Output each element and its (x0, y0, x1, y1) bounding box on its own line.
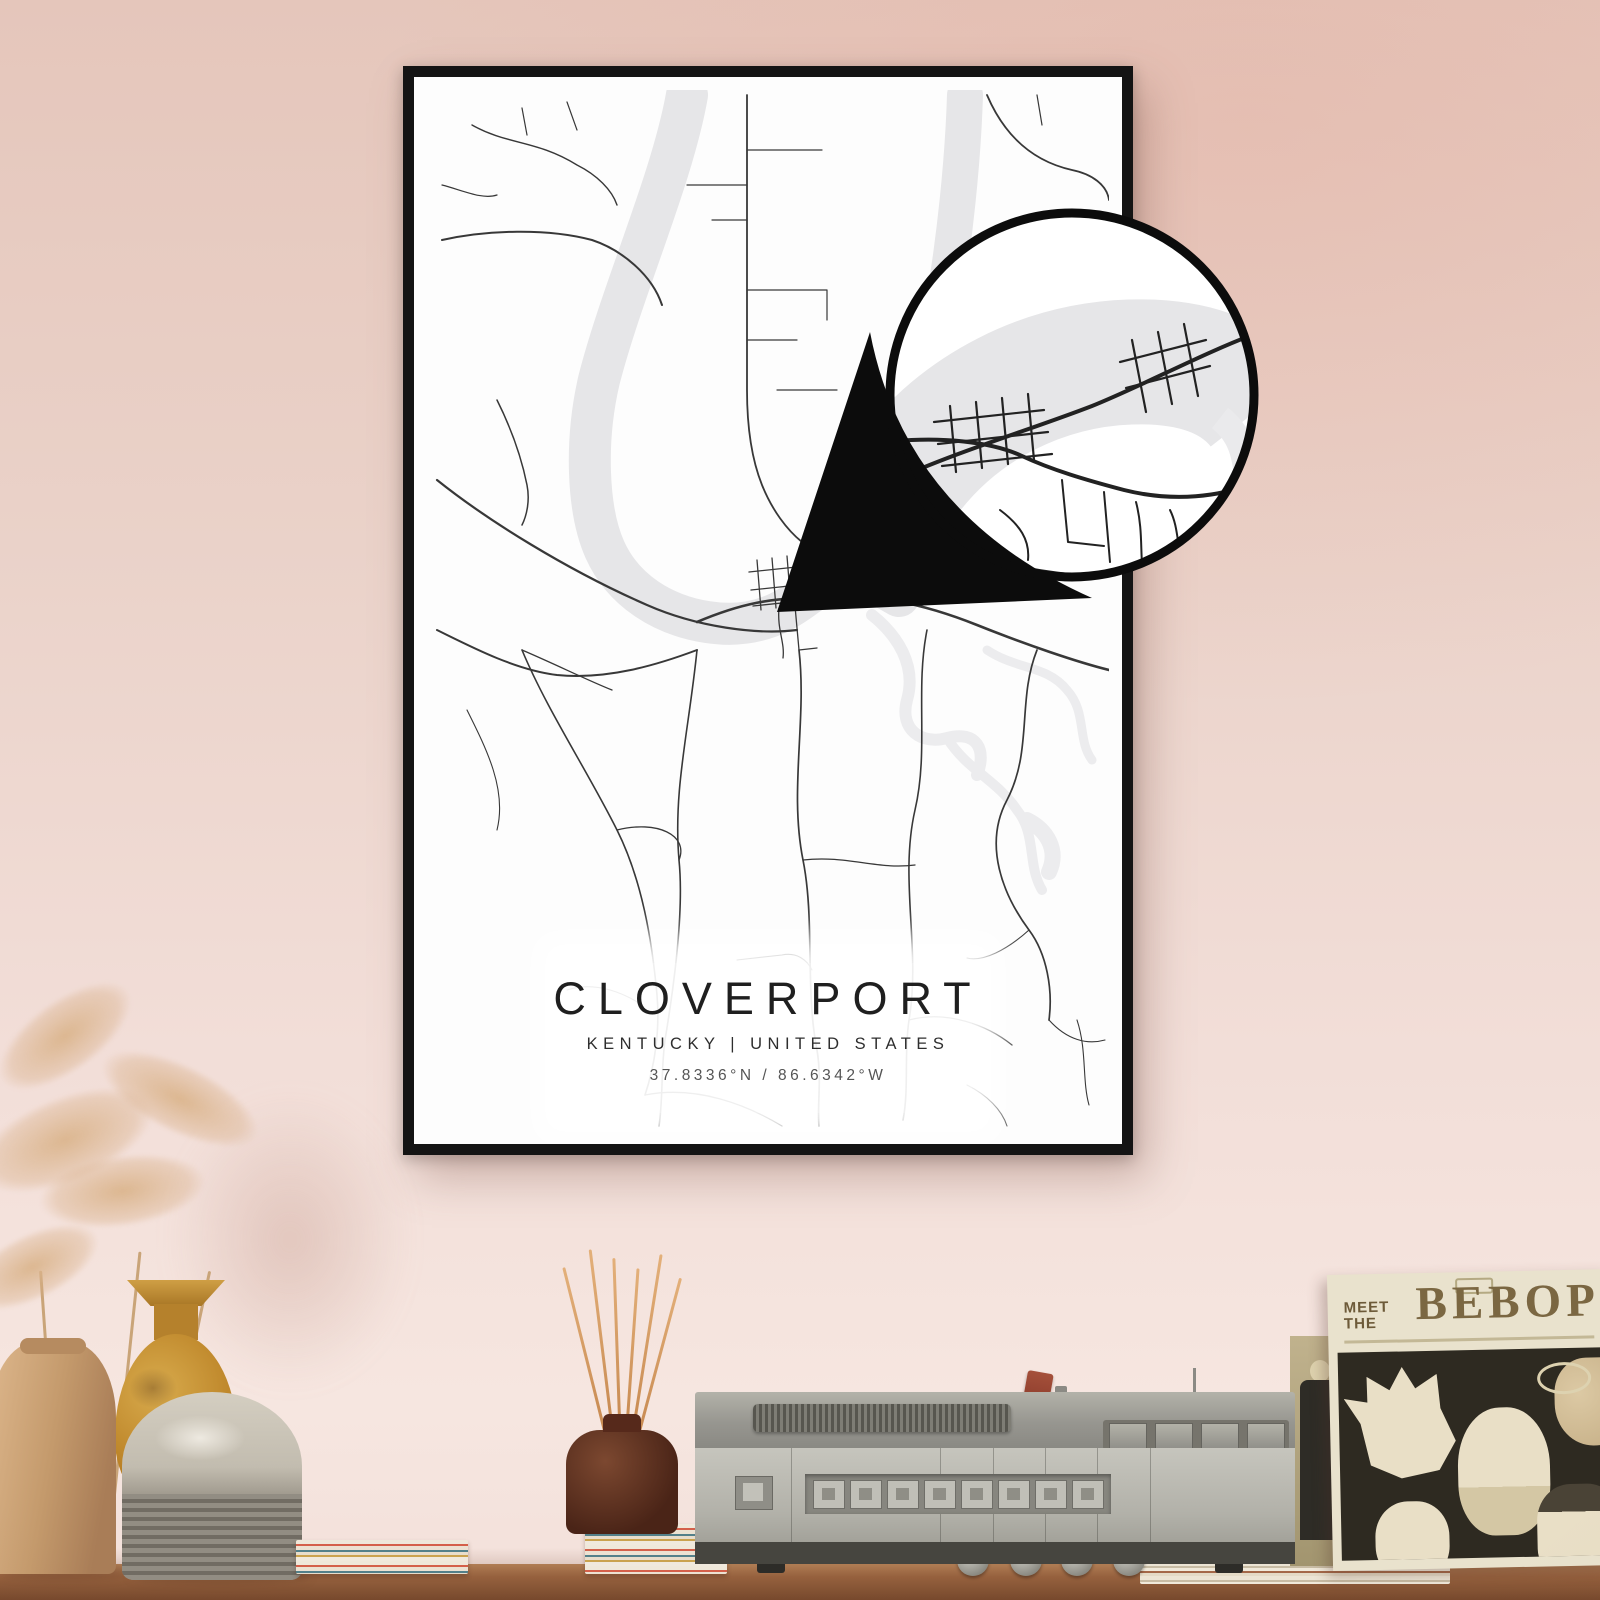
preset-button (887, 1480, 919, 1509)
poster-coordinates: 37.8336°N / 86.6342°W (414, 1067, 1122, 1085)
record-sleeve-bebop: MEET THE BEBOP (1327, 1269, 1600, 1571)
player-top-deck (695, 1392, 1295, 1448)
player-base (695, 1542, 1295, 1564)
artwork-face-spike (1339, 1355, 1466, 1492)
sleeve-title-large: BEBOP (1415, 1273, 1600, 1331)
magazine-stack-left (296, 1540, 468, 1574)
tan-clay-vase (0, 1342, 116, 1574)
preset-button (1072, 1480, 1104, 1509)
preset-button (924, 1480, 956, 1509)
turntable-platter (753, 1404, 1011, 1432)
slider-cap (1109, 1423, 1147, 1449)
slider-cap (1155, 1423, 1193, 1449)
poster-title: CLOVERPORT (414, 973, 1122, 1025)
slider-cap (1201, 1423, 1239, 1449)
preset-button (961, 1480, 993, 1509)
player-front-panel (695, 1448, 1295, 1542)
player-foot (757, 1564, 785, 1573)
sleeve-figure-head (1310, 1360, 1330, 1382)
power-button (735, 1476, 773, 1510)
preset-button (850, 1480, 882, 1509)
slider-panel (1103, 1420, 1289, 1450)
magnifier-loupe (700, 180, 1300, 650)
gray-ribbed-vase (122, 1392, 302, 1580)
sleeve-artwork (1338, 1347, 1600, 1561)
sleeve-fineprint (1344, 1335, 1594, 1343)
record-player (695, 1392, 1295, 1576)
amber-vase-rim (127, 1280, 225, 1306)
preset-button (813, 1480, 845, 1509)
poster-subtitle: KENTUCKY | UNITED STATES (414, 1035, 1122, 1054)
preset-button (1035, 1480, 1067, 1509)
sleeve-title-small: MEET THE (1343, 1300, 1389, 1333)
artwork-face-ed (1536, 1483, 1600, 1561)
preset-button (998, 1480, 1030, 1509)
diffuser-bottle (566, 1430, 678, 1534)
artwork-face-faye (1375, 1501, 1451, 1561)
slider-cap (1247, 1423, 1285, 1449)
preset-button-strip (805, 1474, 1111, 1514)
player-foot (1215, 1564, 1243, 1573)
product-photo: { "poster": { "title": "CLOVERPORT", "su… (0, 0, 1600, 1600)
vase-ribs (122, 1494, 302, 1580)
